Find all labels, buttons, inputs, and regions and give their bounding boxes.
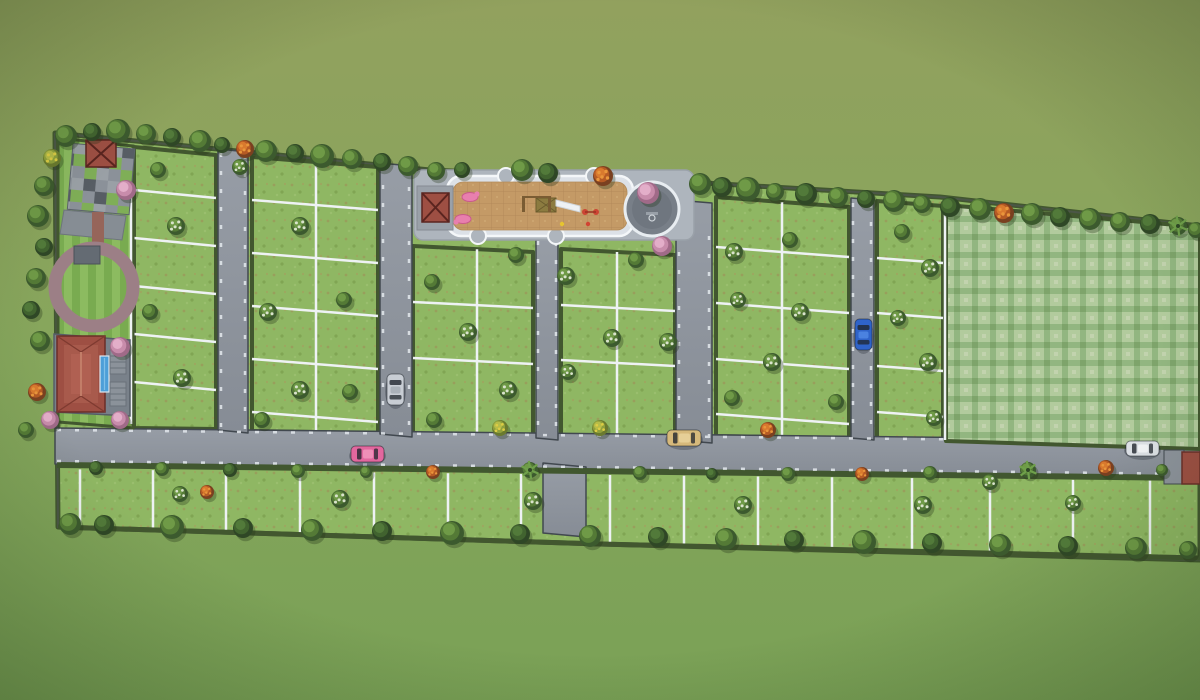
bloom-dot — [434, 468, 436, 470]
tree-canopy-light — [401, 158, 411, 168]
bloom-dot — [773, 356, 776, 359]
tree-canopy-light — [886, 192, 897, 203]
bloom-dot — [770, 430, 773, 433]
tree-canopy-light — [24, 303, 33, 312]
bloom-dot — [733, 301, 736, 304]
bloom-dot — [338, 498, 341, 501]
bloom-dot — [511, 390, 514, 393]
bloom-dot — [604, 170, 607, 173]
bloom-dot — [1101, 464, 1104, 467]
bloom-dot — [209, 492, 211, 494]
play-gazebo — [417, 186, 453, 230]
bloom-dot — [531, 500, 534, 503]
bloom-dot — [1104, 467, 1107, 470]
bloom-dot — [921, 504, 924, 507]
tree-canopy-light — [216, 139, 224, 147]
tree-canopy-light — [157, 463, 164, 470]
bloom-dot — [185, 378, 188, 381]
bloom-dot — [40, 392, 43, 395]
tree-canopy-light — [541, 165, 551, 175]
tree-canopy-light — [1053, 209, 1063, 219]
car-blue — [853, 319, 874, 354]
tree-canopy-light — [943, 199, 953, 209]
bloom-dot — [303, 226, 306, 229]
tree-canopy-light — [29, 270, 39, 280]
bloom-dot — [241, 162, 244, 165]
bloom-dot — [506, 389, 509, 392]
tree-canopy-light — [426, 276, 434, 284]
tree-canopy-light — [165, 130, 174, 139]
tree-canopy-light — [859, 192, 868, 201]
tree-canopy-light — [655, 238, 665, 248]
bloom-dot — [602, 428, 605, 431]
bloom-dot — [569, 276, 572, 279]
bloom-dot — [1108, 468, 1111, 471]
tree-canopy-light — [784, 234, 792, 242]
bloom-dot — [929, 419, 932, 422]
tree-canopy-light — [225, 464, 232, 471]
bloom-dot — [769, 425, 772, 428]
bloom-dot — [924, 499, 927, 502]
bloom-dot — [998, 208, 1001, 211]
bloom-dot — [471, 332, 474, 335]
bloom-dot — [615, 338, 618, 341]
tree-canopy-light — [163, 517, 175, 529]
bloom-dot — [570, 372, 573, 375]
bloom-dot — [181, 489, 184, 492]
car-rear-window — [390, 395, 402, 400]
tree-canopy-light — [972, 200, 983, 211]
tree-canopy-light — [1190, 224, 1198, 232]
bloom-dot — [463, 327, 466, 330]
tree-canopy-light — [113, 413, 122, 422]
bloom-dot — [298, 389, 301, 392]
tree-canopy-light — [651, 529, 661, 539]
bloom-dot — [739, 295, 742, 298]
tree-canopy-light — [192, 132, 203, 143]
bloom-dot — [857, 475, 859, 477]
bloom-dot — [35, 391, 38, 394]
bloom-dot — [435, 472, 437, 474]
tree-canopy-light — [992, 536, 1003, 547]
bloom-dot — [495, 424, 498, 427]
bloom-dot — [795, 307, 798, 310]
bloom-dot — [988, 481, 991, 484]
garden-shed — [74, 246, 100, 264]
tree-canopy-light — [119, 182, 129, 192]
tree-canopy-light — [513, 526, 523, 536]
bloom-dot — [662, 344, 665, 347]
bloom-dot — [613, 332, 616, 335]
car-silver — [385, 374, 406, 409]
bloom-dot — [566, 371, 569, 374]
gate-cabin — [1164, 450, 1200, 484]
bloom-dot — [896, 317, 899, 320]
tree-canopy-light — [139, 126, 149, 136]
tree-canopy-light — [152, 164, 160, 172]
tree-canopy-light — [256, 414, 264, 422]
bloom-dot — [38, 386, 41, 389]
bloom-dot — [917, 507, 920, 510]
car-windshield — [858, 325, 870, 330]
tree-canopy-light — [925, 535, 935, 545]
bloom-dot — [242, 167, 245, 170]
bloom-dot — [469, 326, 472, 329]
bloom-dot — [1068, 499, 1071, 502]
bloom-dot — [182, 494, 185, 497]
bloom-dot — [235, 163, 238, 166]
bloom-dot — [301, 220, 304, 223]
bloom-dot — [502, 392, 505, 395]
tree-canopy-light — [362, 467, 368, 473]
bloom-dot — [202, 493, 204, 495]
tree-canopy-light — [798, 185, 809, 196]
bloom-dot — [271, 312, 274, 315]
bloom-dot — [801, 306, 804, 309]
bloom-dot — [563, 373, 566, 376]
bloom-dot — [985, 478, 988, 481]
bloom-dot — [893, 314, 896, 317]
pink-play-sculpture-head — [453, 219, 458, 224]
site-plan-svg — [0, 0, 1200, 700]
tree-canopy-light — [429, 164, 438, 173]
bloom-dot — [428, 473, 430, 475]
bloom-dot — [429, 468, 431, 470]
bloom-dot — [501, 423, 504, 426]
tree-canopy-light — [344, 386, 352, 394]
bloom-dot — [860, 474, 862, 476]
bloom-dot — [794, 314, 797, 317]
tree-canopy-light — [37, 240, 46, 249]
bloom-dot — [992, 482, 995, 485]
bloom-dot — [495, 429, 498, 432]
swing-post — [522, 196, 525, 212]
bloom-dot — [341, 493, 344, 496]
tree-canopy-light — [288, 146, 297, 155]
bloom-dot — [610, 337, 613, 340]
tree-canopy-light — [304, 521, 315, 532]
car-pink — [349, 446, 386, 466]
bloom-dot — [528, 496, 531, 499]
bloom-dot — [334, 501, 337, 504]
bloom-dot — [509, 384, 512, 387]
bloom-dot — [728, 254, 731, 257]
tree-canopy-light — [915, 197, 924, 206]
bloom-dot — [239, 151, 242, 154]
bloom-dot — [607, 333, 610, 336]
gate-cabin-roof — [1182, 452, 1200, 484]
car-rear-window — [1149, 444, 1153, 454]
bloom-dot — [864, 474, 866, 476]
bloom-dot — [1005, 207, 1008, 210]
tree-canopy-light — [236, 520, 246, 530]
tree-canopy-light — [708, 469, 714, 475]
bloom-dot — [929, 356, 932, 359]
bloom-dot — [208, 488, 210, 490]
vertical-road-3 — [536, 236, 558, 440]
tree-canopy-light — [109, 121, 121, 133]
bloom-dot — [767, 357, 770, 360]
bloom-dot — [55, 158, 58, 161]
bloom-dot — [243, 148, 246, 151]
bloom-dot — [926, 505, 929, 508]
tree-canopy-light — [582, 527, 593, 538]
bloom-dot — [536, 501, 539, 504]
bloom-dot — [235, 168, 238, 171]
bloom-dot — [737, 507, 740, 510]
bloom-dot — [295, 221, 298, 224]
bloom-dot — [301, 384, 304, 387]
bloom-dot — [240, 144, 243, 147]
tree-canopy-light — [692, 175, 703, 186]
bloom-dot — [527, 503, 530, 506]
tree-canopy-light — [855, 532, 867, 544]
bloom-dot — [925, 263, 928, 266]
bloom-dot — [931, 262, 934, 265]
bloom-dot — [269, 306, 272, 309]
bloom-dot — [53, 152, 56, 155]
tree-canopy-light — [896, 226, 904, 234]
bloom-dot — [1101, 469, 1104, 472]
bloom-dot — [770, 361, 773, 364]
bloom-dot — [935, 413, 938, 416]
bloom-dot — [1007, 213, 1010, 216]
bloom-dot — [798, 311, 801, 314]
bloom-dot — [238, 166, 241, 169]
bloom-dot — [991, 477, 994, 480]
bloom-dot — [929, 414, 932, 417]
bloom-dot — [262, 314, 265, 317]
bloom-dot — [928, 267, 931, 270]
bloom-dot — [736, 299, 739, 302]
car-windshield — [673, 433, 678, 444]
bloom-dot — [926, 361, 929, 364]
swing-post — [548, 196, 551, 212]
car-windshield — [1132, 444, 1137, 454]
bloom-dot — [932, 417, 935, 420]
bloom-dot — [741, 504, 744, 507]
tree-canopy-light — [715, 179, 725, 189]
tree-canopy-light — [97, 517, 107, 527]
bloom-dot — [175, 490, 178, 493]
bloom-dot — [1075, 503, 1078, 506]
car-roof — [363, 450, 373, 459]
bloom-dot — [294, 392, 297, 395]
tree-canopy-light — [726, 392, 734, 400]
tree-canopy-light — [1143, 216, 1153, 226]
bloom-dot — [171, 221, 174, 224]
tree-canopy-light — [91, 462, 98, 469]
bloom-dot — [918, 500, 921, 503]
tree-canopy-light — [144, 306, 152, 314]
bloom-dot — [733, 296, 736, 299]
bloom-dot — [178, 493, 181, 496]
pink-play-sculpture-head — [474, 191, 479, 196]
tree-canopy-light — [830, 396, 838, 404]
open-lawn-field — [946, 205, 1200, 449]
bloom-dot — [600, 175, 603, 178]
palm-crown — [1026, 468, 1030, 472]
tree-canopy-light — [113, 339, 123, 349]
south-entry-stub — [543, 463, 586, 537]
bloom-dot — [598, 427, 601, 430]
bloom-dot — [858, 470, 860, 472]
bloom-dot — [179, 226, 182, 229]
bloom-dot — [205, 492, 207, 494]
open-lawn — [945, 205, 1200, 449]
bloom-dot — [936, 418, 939, 421]
tree-canopy-light — [293, 465, 300, 472]
palm-crown — [528, 468, 532, 472]
bloom-dot — [561, 271, 564, 274]
bloom-dot — [431, 472, 433, 474]
tree-canopy-light — [62, 515, 73, 526]
bloom-dot — [1107, 463, 1110, 466]
bloom-dot — [564, 275, 567, 278]
bloom-dot — [1001, 212, 1004, 215]
bloom-dot — [922, 364, 925, 367]
tree-canopy-light — [375, 155, 384, 164]
tree-canopy-light — [456, 164, 464, 172]
bloom-dot — [46, 160, 49, 163]
bloom-dot — [744, 499, 747, 502]
bloom-dot — [746, 505, 749, 508]
tree-canopy-light — [1181, 543, 1190, 552]
bloom-dot — [266, 311, 269, 314]
tree-canopy-light — [718, 530, 729, 541]
bloom-dot — [985, 483, 988, 486]
site-plan-render — [0, 0, 1200, 700]
car-roof — [1138, 445, 1148, 453]
tree-canopy-light — [739, 179, 751, 191]
bloom-dot — [766, 429, 769, 432]
bloom-dot — [596, 178, 599, 181]
bloom-dot — [248, 149, 251, 152]
tree-canopy-light — [630, 254, 638, 262]
bloom-dot — [203, 488, 205, 490]
vertical-road-1 — [218, 149, 248, 433]
bloom-dot — [931, 362, 934, 365]
car-windshield — [357, 449, 362, 460]
play-dot-red — [586, 222, 590, 226]
tree-canopy-light — [1113, 214, 1123, 224]
bloom-dot — [303, 390, 306, 393]
tree-canopy-light — [783, 468, 790, 475]
tree-canopy-light — [30, 207, 41, 218]
bloom-dot — [174, 225, 177, 228]
bloom-dot — [176, 380, 179, 383]
bloom-dot — [900, 318, 903, 321]
bloom-dot — [763, 426, 766, 429]
bloom-dot — [775, 362, 778, 365]
bloom-dot — [563, 368, 566, 371]
bloom-dot — [663, 337, 666, 340]
bloom-dot — [534, 495, 537, 498]
bloom-dot — [47, 153, 50, 156]
brick-path — [92, 212, 104, 246]
bloom-dot — [31, 394, 34, 397]
car-roof — [859, 332, 869, 339]
tree-canopy-light — [1158, 465, 1164, 471]
bloom-dot — [246, 143, 249, 146]
tree-canopy-light — [635, 467, 642, 474]
bloom-dot — [671, 342, 674, 345]
bloom-dot — [740, 300, 743, 303]
bloom-dot — [503, 385, 506, 388]
bloom-dot — [737, 252, 740, 255]
tree-canopy-light — [313, 146, 325, 158]
tree-canopy-light — [925, 467, 932, 474]
bloom-dot — [597, 171, 600, 174]
bloom-dot — [1068, 504, 1071, 507]
bloom-dot — [183, 372, 186, 375]
bloom-dot — [263, 307, 266, 310]
bloom-dot — [997, 215, 1000, 218]
bloom-dot — [567, 270, 570, 273]
bloom-dot — [803, 312, 806, 315]
bloom-dot — [502, 428, 505, 431]
bloom-dot — [295, 385, 298, 388]
bloom-dot — [177, 220, 180, 223]
car-roof — [391, 387, 401, 394]
car-rear-window — [858, 340, 870, 345]
bloom-dot — [498, 427, 501, 430]
car-gold — [665, 430, 703, 450]
bloom-dot — [335, 494, 338, 497]
tree-canopy-light — [428, 414, 436, 422]
tree-canopy-light — [258, 142, 269, 153]
tree-canopy-light — [514, 161, 525, 172]
tree-canopy-light — [1082, 210, 1093, 221]
bloom-dot — [298, 225, 301, 228]
bloom-dot — [735, 246, 738, 249]
tree-canopy-light — [1128, 539, 1139, 550]
tree-canopy-light — [640, 184, 651, 195]
tree-canopy-light — [1024, 205, 1035, 216]
bloom-dot — [466, 331, 469, 334]
bloom-dot — [606, 340, 609, 343]
bloom-dot — [1074, 498, 1077, 501]
bloom-dot — [595, 429, 598, 432]
bloom-dot — [666, 341, 669, 344]
bloom-dot — [763, 431, 766, 434]
bloom-dot — [893, 319, 896, 322]
bloom-dot — [669, 336, 672, 339]
tree-canopy-light — [831, 189, 841, 199]
bloom-dot — [1071, 502, 1074, 505]
bloom-dot — [933, 268, 936, 271]
tree-canopy-light — [58, 127, 69, 138]
bloom-dot — [924, 270, 927, 273]
bloom-dot — [923, 357, 926, 360]
tree-canopy-light — [33, 333, 43, 343]
car-white — [1124, 441, 1161, 460]
tree-canopy-light — [338, 294, 346, 302]
tree-canopy-light — [43, 413, 52, 422]
bloom-dot — [50, 157, 53, 160]
bloom-dot — [175, 495, 178, 498]
tree-canopy-light — [443, 523, 455, 535]
car-roof — [679, 434, 690, 443]
bloom-dot — [899, 313, 902, 316]
tree-canopy-light — [37, 178, 47, 188]
tree-canopy-light — [768, 185, 777, 194]
entry-gazebo — [86, 140, 116, 167]
bloom-dot — [32, 387, 35, 390]
bloom-dot — [738, 500, 741, 503]
bloom-dot — [601, 423, 604, 426]
bloom-dot — [343, 499, 346, 502]
